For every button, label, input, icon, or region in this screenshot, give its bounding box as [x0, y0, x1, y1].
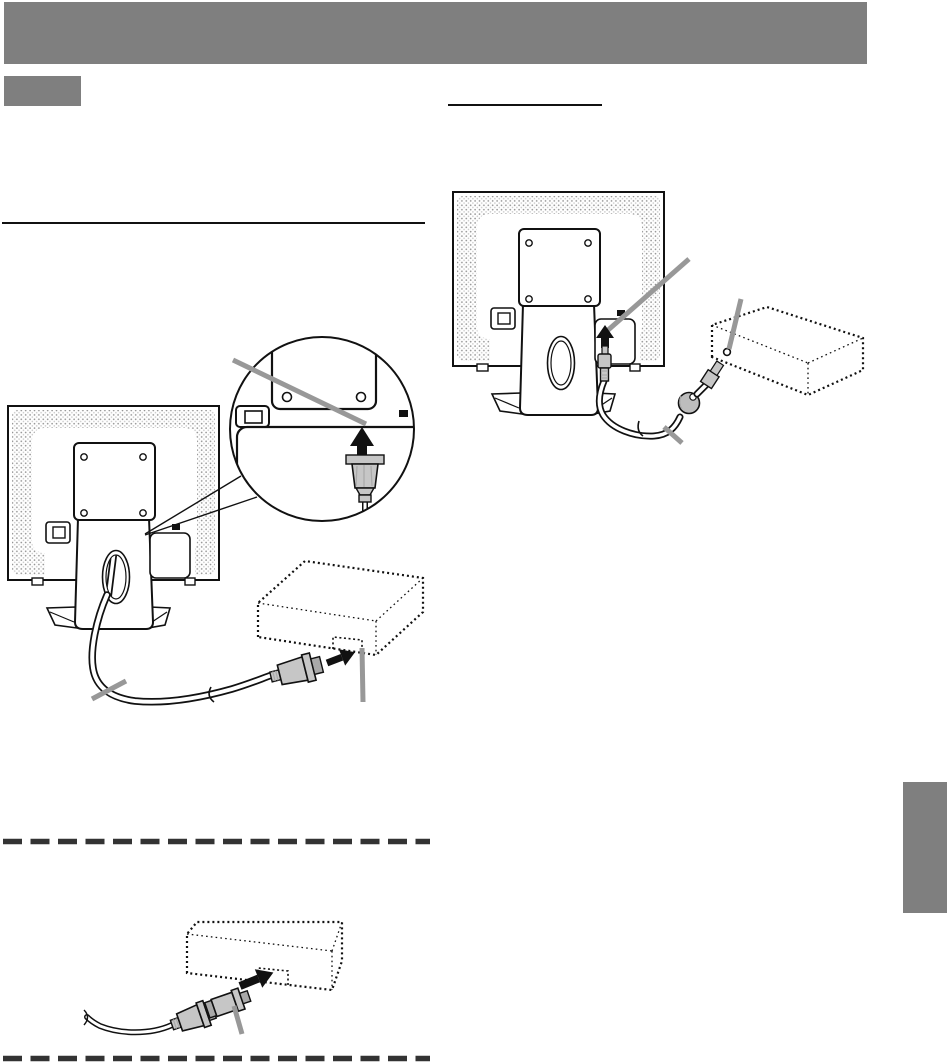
computer-end-plug	[701, 360, 726, 389]
illustrations-canvas	[0, 0, 947, 1062]
magnified-kensington-slot	[399, 410, 408, 417]
signal-connector	[268, 651, 325, 691]
audio-output-terminal	[724, 349, 731, 356]
figure-audio-connection	[453, 192, 863, 443]
figure-analog-connection	[8, 330, 427, 702]
adapter	[204, 986, 253, 1021]
figure-adapter-connection	[84, 922, 342, 1037]
manual-page	[0, 0, 947, 1062]
magnified-signal-connector	[346, 455, 384, 464]
computer-dotted-box	[258, 561, 423, 655]
callout-line-computer-terminal	[362, 648, 363, 702]
